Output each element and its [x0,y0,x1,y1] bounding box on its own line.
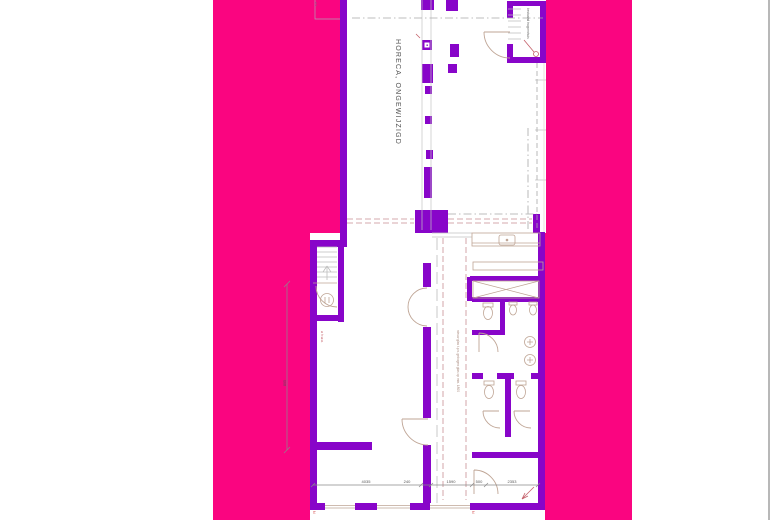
label-grid-mark: 2.1 [314,2,317,6]
north-mark-center: N [471,511,475,514]
dim-label-1590: 1590 [447,479,456,484]
dim-label-4035: 4035 [362,479,371,484]
label-left-dimension: 805 [284,380,288,386]
plan-area-lower [310,233,545,520]
label-corridor-note: nieuw glas t.p.v. gebogen glas op min. 1… [456,330,459,392]
label-stairwell-note: bestaand trappenhuis [526,8,529,39]
dim-label-240: 240 [404,479,411,484]
dim-label-500: 500 [476,479,483,484]
north-mark-left: N [312,511,316,514]
page-border-right [768,0,770,520]
page: HORECA, ONGEWIJZIGD bestaand trappenhuis… [0,0,780,520]
plan-area-upper [345,0,546,233]
label-hwa: ⌀ h.w.a. [320,331,323,343]
label-horeca-ongewijzigd: HORECA, ONGEWIJZIGD [394,39,401,145]
dim-label-2353: 2353 [508,479,517,484]
